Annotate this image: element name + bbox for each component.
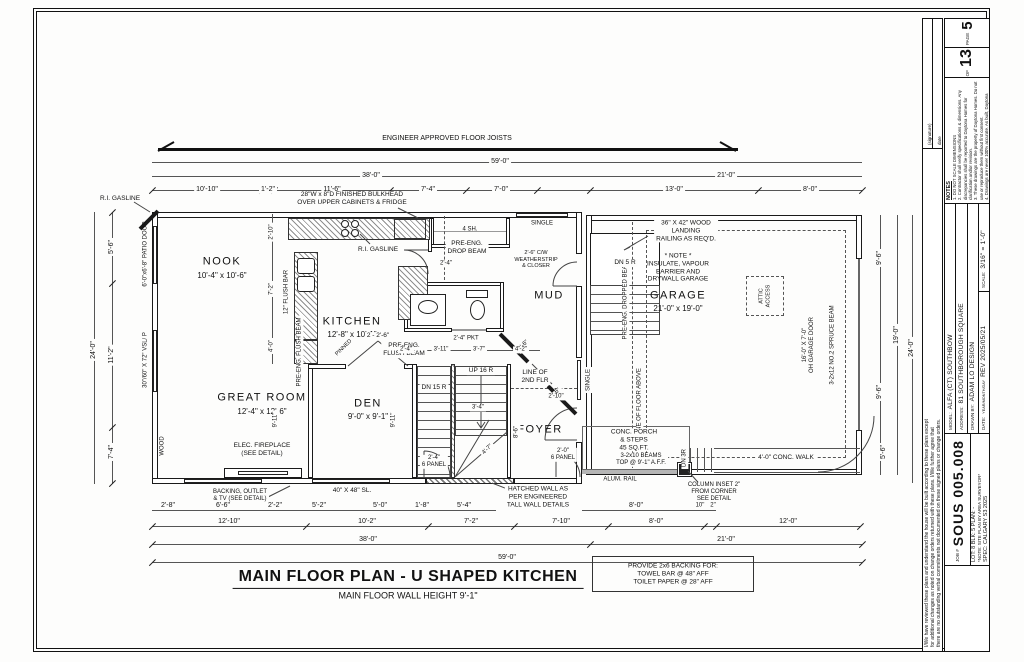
room-dims: 10'-4" x 10'-6"	[197, 271, 246, 281]
leader-line	[624, 236, 648, 250]
weatherstrip-door-note: 2'-6" C/W WEATHERSTRIP & CLOSER	[514, 250, 557, 270]
dim-label: 38'-0"	[360, 172, 382, 180]
dim-label: 24'-0"	[90, 339, 98, 361]
attic-access-label: ATTIC ACCESS	[758, 285, 771, 308]
dropped-beam-label: PRE-ENG. DROPPED BEAM	[622, 258, 629, 341]
bulkhead-note: 28"W x 8"D FINISHED BULKHEAD OVER UPPER …	[295, 191, 408, 207]
beams-note: 3-2x10 BEAMS TOP @ 9'-1" A.F.F.	[614, 453, 668, 467]
dim-label: 8'-0"	[647, 518, 665, 526]
pocket-door-label: 2'-4" PKT	[451, 335, 480, 342]
dim-label: 38'-0"	[357, 536, 379, 544]
dim-label: 24'-0"	[908, 337, 916, 359]
garage-door-label: 16'-0" X 7'-0" OH GARAGE DOOR	[802, 315, 816, 375]
dim-label: 8'-0"	[627, 502, 645, 510]
patio-door-label: 6'-0"x6'-8" PATIO DOOR	[142, 221, 149, 286]
dim-label: 10'-10"	[194, 186, 220, 194]
spruce-beam-label: 3-2x12 NO.2 SPRUCE BEAM	[829, 303, 836, 386]
drawing-sheet: ENGINEER APPROVED FLOOR JOISTS 59'-0" 38…	[0, 0, 1024, 662]
window-label: SINGLE	[585, 367, 592, 393]
stair-arrow	[477, 374, 485, 428]
closet-shelves-label: 4 SH.	[462, 226, 477, 233]
gasline-note: R.I. GASLINE	[100, 195, 140, 203]
dim-label: 21'-0"	[715, 172, 737, 180]
flush-bar-label: 12" FLUSH BAR	[283, 268, 290, 316]
dim-label: 1'-8"	[413, 502, 431, 510]
joist-arrowheads	[158, 142, 736, 151]
plan-linework	[0, 0, 1024, 662]
floor-above-label: LINE OF FLOOR ABOVE	[636, 366, 643, 438]
dim-label: 2'-10"	[546, 393, 565, 400]
room-dims: 21'-0" x 19'-0"	[653, 304, 702, 314]
dim-label: 59'-0"	[496, 554, 518, 562]
window-label: SINGLE	[531, 220, 553, 227]
dim-label: 4'-0"	[268, 338, 275, 354]
dim-label: 12'-10"	[216, 518, 242, 526]
gasline-note: R.I. GASLINE	[356, 246, 400, 254]
dim-label: 7'-4"	[419, 186, 437, 194]
dim-label: 2'-10"	[268, 222, 275, 241]
dim-label: 3'-4"	[470, 404, 486, 411]
plan-title: MAIN FLOOR PLAN - U SHAPED KITCHEN	[233, 567, 584, 589]
dim-label: 9'-11"	[272, 411, 279, 430]
dim-label: 11'-2"	[108, 344, 116, 365]
room-label-mud: MUD	[534, 289, 564, 302]
dim-label: 10'-2"	[356, 518, 378, 526]
dim-label: 5'-4"	[455, 502, 473, 510]
walk-label: 4'-0" CONC. WALK	[756, 454, 816, 462]
walk-curve	[818, 416, 874, 472]
dim-label: 13'-0"	[663, 186, 685, 194]
dim-label: 7'-4"	[108, 443, 116, 461]
joist-note: ENGINEER APPROVED FLOOR JOISTS	[380, 135, 514, 143]
dim-label: 10"	[694, 502, 707, 509]
hatched-wall-note: HATCHED WALL AS PER ENGINEERED TALL WALL…	[505, 485, 571, 508]
garage-insulate-note: * NOTE * INSULATE, VAPOUR BARRIER AND DR…	[647, 252, 709, 283]
column-note: COLUMN INSET 2" FROM CORNER SEE DETAIL	[686, 482, 742, 504]
dim-label: 7'-10"	[550, 518, 572, 526]
dim-label: 2'-8"	[159, 502, 177, 510]
room-label-nook: NOOK	[203, 255, 241, 268]
dim-label: 2"	[708, 502, 717, 509]
leader-line	[398, 208, 418, 218]
door-panel-label: 2'-0" 6 PANEL	[549, 448, 577, 462]
room-label-foyer: FOYER	[517, 423, 562, 436]
dim-label: 9'-6"	[876, 383, 884, 401]
room-dims: 9'-0" x 9'-1"	[348, 412, 388, 422]
door-arc	[404, 250, 428, 274]
room-label-great-room: GREAT ROOM	[217, 391, 306, 404]
dim-label: 21'-0"	[715, 536, 737, 544]
drop-beam-note: PRE-ENG. DROP BEAM	[446, 240, 489, 256]
room-label-den: DEN	[354, 397, 382, 410]
dim-label: 5'-2"	[310, 502, 328, 510]
dim-label: 1'-2"	[259, 186, 277, 194]
dim-label: 7'-0"	[492, 186, 510, 194]
backing-note: PROVIDE 2x6 BACKING FOR: TOWEL BAR @ 48"…	[628, 562, 718, 585]
den-doors-label: 2 - 2'-6"	[365, 332, 391, 340]
dim-label: 9'-11"	[390, 411, 397, 430]
window-label: 30"/60" X 72" VSL/ P	[142, 332, 149, 388]
leader-line	[360, 234, 370, 244]
dim-label: 3'-7"	[471, 346, 487, 353]
landing-note: 36" X 42" WOOD LANDING RAILING AS REQ'D.	[654, 219, 718, 242]
dim-label: 5'-0"	[371, 502, 389, 510]
door-size-label: 2'-4"	[438, 260, 454, 267]
wood-label: WOOD	[159, 436, 166, 455]
stair-up-label: UP 16 R	[467, 367, 495, 375]
door-panel-label: 2'-4" 6 PANEL	[420, 455, 448, 469]
dim-label: 7'-2"	[462, 518, 480, 526]
dim-label: 5'-6"	[880, 443, 888, 461]
dim-label: 8'-0"	[801, 186, 819, 194]
dim-label: 59'-0"	[489, 158, 511, 166]
fireplace-note: ELEC. FIREPLACE (SEE DETAIL)	[232, 442, 293, 458]
stair-down-label: DN 15 R	[420, 384, 449, 392]
line-2nd-floor-note: LINE OF 2ND FLR	[519, 369, 550, 385]
dim-label: 9'-6"	[876, 249, 884, 267]
alum-rail-label: ALUM. RAIL	[601, 476, 638, 483]
dim-label: 2'-2"	[266, 502, 284, 510]
dim-label: 19'-0"	[893, 324, 901, 346]
flush-beam-label: PRE-ENG. FLUSH BEAM	[296, 315, 303, 388]
dim-label: 4'-2"	[513, 346, 529, 353]
dim-label: 8'-6"	[513, 424, 520, 440]
window-label: 40" X 48" SL.	[331, 487, 374, 495]
porch-note: CONC. PORCH & STEPS 45 SQ.FT.	[609, 428, 659, 451]
plan-subtitle: MAIN FLOOR WALL HEIGHT 9'-1"	[338, 591, 477, 602]
leader-line	[134, 202, 150, 212]
porch-steps-label: DN 3R	[681, 447, 688, 469]
dim-label: 5'-6"	[108, 238, 116, 256]
room-label-garage: GARAGE	[650, 289, 706, 302]
dim-label: 7'-2"	[268, 281, 275, 297]
dim-label: 2'-4"	[398, 346, 414, 353]
stair-down-label: DN 5 R	[612, 259, 637, 267]
room-label-kitchen: KITCHEN	[323, 315, 382, 328]
dim-label: 12'-0"	[777, 518, 799, 526]
dim-label: 3'-11"	[432, 346, 451, 353]
dim-label: 6'-6"	[214, 502, 232, 510]
